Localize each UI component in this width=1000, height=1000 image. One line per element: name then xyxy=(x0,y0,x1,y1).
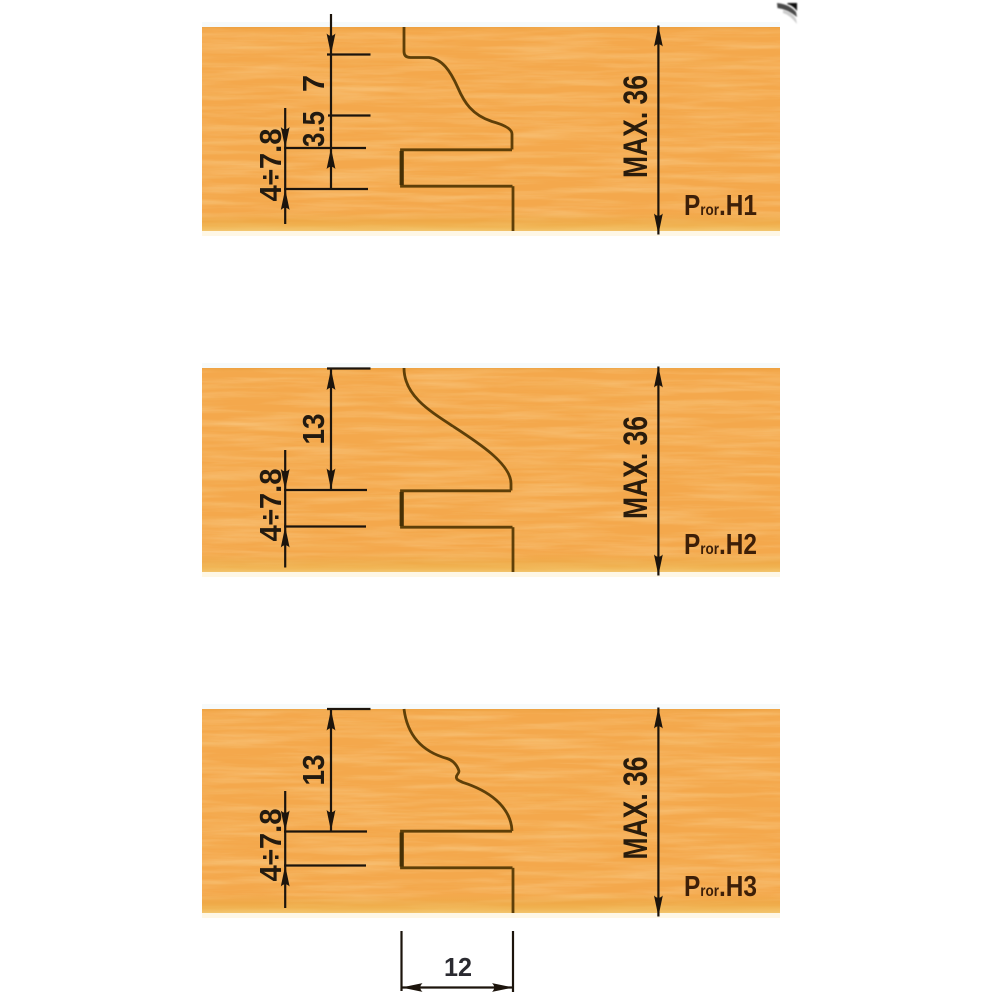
svg-text:13: 13 xyxy=(296,414,331,445)
svg-text:Pror.H2: Pror.H2 xyxy=(684,529,757,561)
svg-text:4÷7.8: 4÷7.8 xyxy=(253,469,288,542)
svg-text:13: 13 xyxy=(296,755,331,786)
svg-text:4÷7.8: 4÷7.8 xyxy=(253,129,288,202)
svg-text:MAX. 36: MAX. 36 xyxy=(617,75,655,178)
svg-text:12: 12 xyxy=(444,952,472,982)
svg-text:Pror.H3: Pror.H3 xyxy=(684,871,757,903)
svg-text:Pror.H1: Pror.H1 xyxy=(684,190,757,222)
svg-text:3.5: 3.5 xyxy=(296,111,331,147)
svg-text:MAX. 36: MAX. 36 xyxy=(617,757,655,860)
svg-text:MAX. 36: MAX. 36 xyxy=(617,416,655,519)
svg-text:7: 7 xyxy=(296,75,331,92)
svg-text:4÷7.8: 4÷7.8 xyxy=(253,809,288,882)
